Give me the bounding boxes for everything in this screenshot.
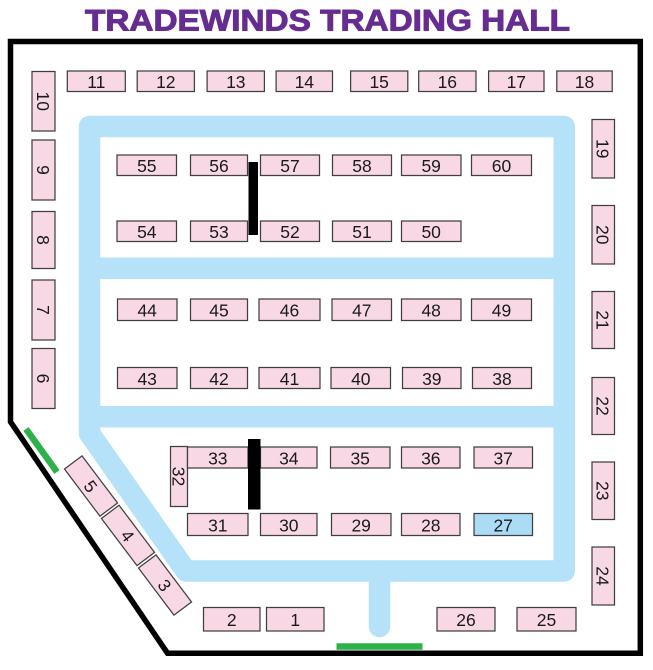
svg-text:55: 55 — [137, 156, 156, 176]
svg-text:20: 20 — [593, 225, 613, 245]
svg-text:34: 34 — [279, 448, 299, 468]
svg-text:11: 11 — [87, 72, 105, 92]
svg-text:26: 26 — [456, 610, 475, 630]
svg-text:38: 38 — [492, 369, 511, 389]
svg-text:46: 46 — [280, 301, 299, 321]
svg-text:8: 8 — [33, 235, 53, 245]
svg-text:52: 52 — [280, 222, 299, 242]
svg-text:2: 2 — [227, 610, 237, 630]
svg-text:18: 18 — [575, 72, 594, 92]
svg-text:23: 23 — [593, 481, 613, 500]
svg-text:51: 51 — [352, 222, 371, 242]
svg-text:13: 13 — [226, 72, 245, 92]
svg-text:59: 59 — [421, 156, 440, 176]
svg-text:56: 56 — [209, 156, 228, 176]
svg-text:36: 36 — [421, 448, 440, 468]
svg-text:32: 32 — [168, 467, 188, 486]
svg-text:35: 35 — [350, 448, 369, 468]
svg-text:50: 50 — [421, 222, 441, 242]
svg-text:1: 1 — [290, 610, 300, 630]
svg-text:14: 14 — [295, 72, 315, 92]
svg-text:25: 25 — [537, 610, 556, 630]
svg-text:28: 28 — [421, 515, 440, 535]
svg-text:54: 54 — [137, 222, 157, 242]
svg-text:33: 33 — [208, 448, 227, 468]
svg-text:29: 29 — [351, 515, 370, 535]
svg-text:27: 27 — [493, 515, 512, 535]
svg-text:22: 22 — [593, 396, 613, 415]
svg-text:53: 53 — [209, 222, 228, 242]
svg-text:47: 47 — [352, 301, 371, 321]
svg-text:58: 58 — [352, 156, 371, 176]
svg-text:9: 9 — [33, 165, 53, 175]
svg-text:30: 30 — [279, 515, 299, 535]
svg-text:43: 43 — [137, 369, 156, 389]
svg-text:7: 7 — [33, 305, 53, 315]
svg-text:60: 60 — [492, 156, 512, 176]
svg-text:37: 37 — [493, 448, 512, 468]
svg-text:10: 10 — [33, 91, 53, 111]
svg-text:41: 41 — [280, 369, 299, 389]
svg-text:44: 44 — [137, 301, 157, 321]
svg-text:6: 6 — [33, 374, 53, 384]
svg-text:31: 31 — [208, 515, 227, 535]
svg-text:17: 17 — [507, 72, 526, 92]
svg-text:39: 39 — [422, 369, 441, 389]
svg-text:40: 40 — [351, 369, 371, 389]
svg-text:45: 45 — [209, 301, 228, 321]
svg-text:15: 15 — [369, 72, 388, 92]
svg-text:21: 21 — [593, 310, 613, 329]
svg-text:19: 19 — [593, 139, 613, 158]
svg-text:16: 16 — [438, 72, 457, 92]
svg-text:48: 48 — [421, 301, 440, 321]
svg-text:12: 12 — [156, 72, 175, 92]
svg-text:24: 24 — [593, 566, 613, 586]
svg-text:TRADEWINDS TRADING HALL: TRADEWINDS TRADING HALL — [85, 5, 570, 38]
svg-text:49: 49 — [492, 301, 511, 321]
svg-text:42: 42 — [209, 369, 228, 389]
svg-text:57: 57 — [280, 156, 299, 176]
